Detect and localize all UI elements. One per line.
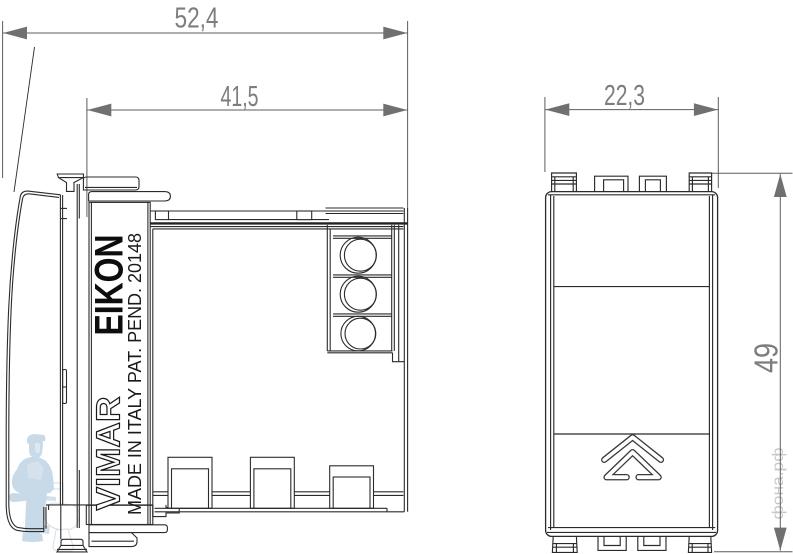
svg-text:VIMAR: VIMAR bbox=[90, 396, 127, 510]
svg-text:22,3: 22,3 bbox=[604, 80, 645, 112]
svg-text:52,4: 52,4 bbox=[175, 3, 219, 35]
svg-text:41,5: 41,5 bbox=[221, 81, 259, 113]
svg-text:MADE IN ITALY PAT. PEND. 20148: MADE IN ITALY PAT. PEND. 20148 bbox=[125, 233, 145, 515]
svg-text:49: 49 bbox=[748, 343, 785, 373]
svg-text:фона.рф: фона.рф bbox=[770, 447, 787, 519]
